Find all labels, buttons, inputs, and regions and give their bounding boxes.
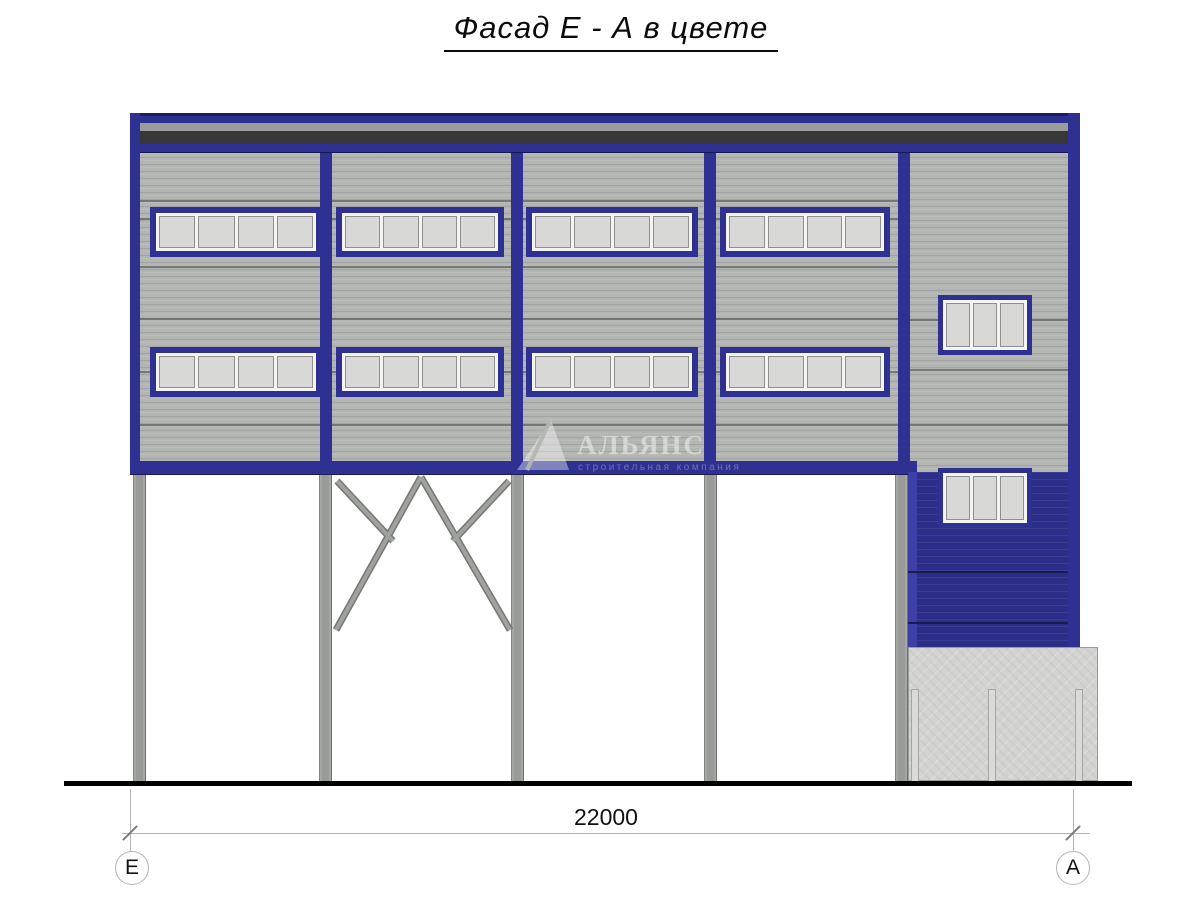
window-pane [238,216,274,248]
small-window-lower [938,468,1032,528]
window-pane [729,216,765,248]
window-pane [946,303,970,347]
window-pane [198,216,234,248]
dimension-label: 22000 [546,804,666,831]
wall-left-trim [130,113,140,475]
roof-fascia-stripe-gray [138,123,1074,131]
concrete-foundation [908,647,1098,781]
window-pane [383,216,418,248]
window-pane [460,356,495,388]
watermark-name: АЛЬЯНС [577,430,705,461]
steel-column-1 [133,475,146,781]
bay-divider-2 [511,153,523,461]
window-pane [159,356,195,388]
bay-divider-4 [898,153,910,472]
axis-marker-left-label: Е [125,856,139,880]
window-pane [460,216,495,248]
roof-parapet-band [130,113,1080,153]
ribbon-window-bay2-lower [336,347,504,397]
window-pane [1000,303,1024,347]
steel-column-4 [704,475,717,781]
axis-marker-right: А [1056,851,1090,885]
ribbon-window-bay1-lower [150,347,322,397]
window-pane [653,356,689,388]
window-pane [574,356,610,388]
foundation-post [988,689,996,783]
ribbon-window-bay1-upper [150,207,322,257]
drawing-canvas: Фасад Е - А в цвете [0,0,1200,900]
window-pane [845,356,881,388]
watermark-logo-icon [505,416,575,474]
window-pane [383,356,418,388]
cross-bracing [330,474,516,636]
ribbon-window-bay4-lower [720,347,890,397]
bay-divider-3 [704,153,716,461]
roof-fascia-stripe-dark [138,131,1074,144]
window-pane [238,356,274,388]
window-pane [973,303,997,347]
panel-joint-line [910,424,1068,426]
lower-wall-edge-trim [908,472,917,647]
bay-divider-1 [320,153,332,461]
wall-right-trim [1068,113,1080,647]
axis-marker-left: Е [115,851,149,885]
small-window-upper [938,295,1032,355]
ribbon-window-bay2-upper [336,207,504,257]
ground-line [64,781,1132,786]
window-pane [422,356,457,388]
window-pane [614,216,650,248]
window-pane [345,216,380,248]
window-pane [614,356,650,388]
window-pane [1000,476,1024,520]
panel-joint-line [908,622,1078,624]
dimension-extension-right [1073,789,1074,851]
watermark-subtitle: строительная компания [578,462,741,473]
ribbon-window-bay4-upper [720,207,890,257]
foundation-post [911,689,919,783]
panel-joint-line [910,369,1068,371]
drawing-title: Фасад Е - А в цвете [0,10,1200,52]
ribbon-window-bay3-lower [526,347,698,397]
window-pane [807,216,843,248]
window-pane [535,216,571,248]
window-pane [198,356,234,388]
ribbon-window-bay3-upper [526,207,698,257]
window-pane [768,216,804,248]
axis-marker-right-label: А [1066,856,1080,880]
window-pane [422,216,457,248]
window-pane [946,476,970,520]
window-pane [574,216,610,248]
window-pane [345,356,380,388]
window-pane [159,216,195,248]
window-pane [535,356,571,388]
foundation-post [1075,689,1083,783]
drawing-title-text: Фасад Е - А в цвете [444,10,779,52]
window-pane [277,356,313,388]
window-pane [973,476,997,520]
steel-column-5 [895,475,908,781]
window-pane [845,216,881,248]
dimension-line [122,833,1090,834]
window-pane [768,356,804,388]
panel-joint-line [908,571,1078,573]
window-pane [729,356,765,388]
window-pane [807,356,843,388]
dimension-extension-left [130,789,131,851]
window-pane [653,216,689,248]
window-pane [277,216,313,248]
